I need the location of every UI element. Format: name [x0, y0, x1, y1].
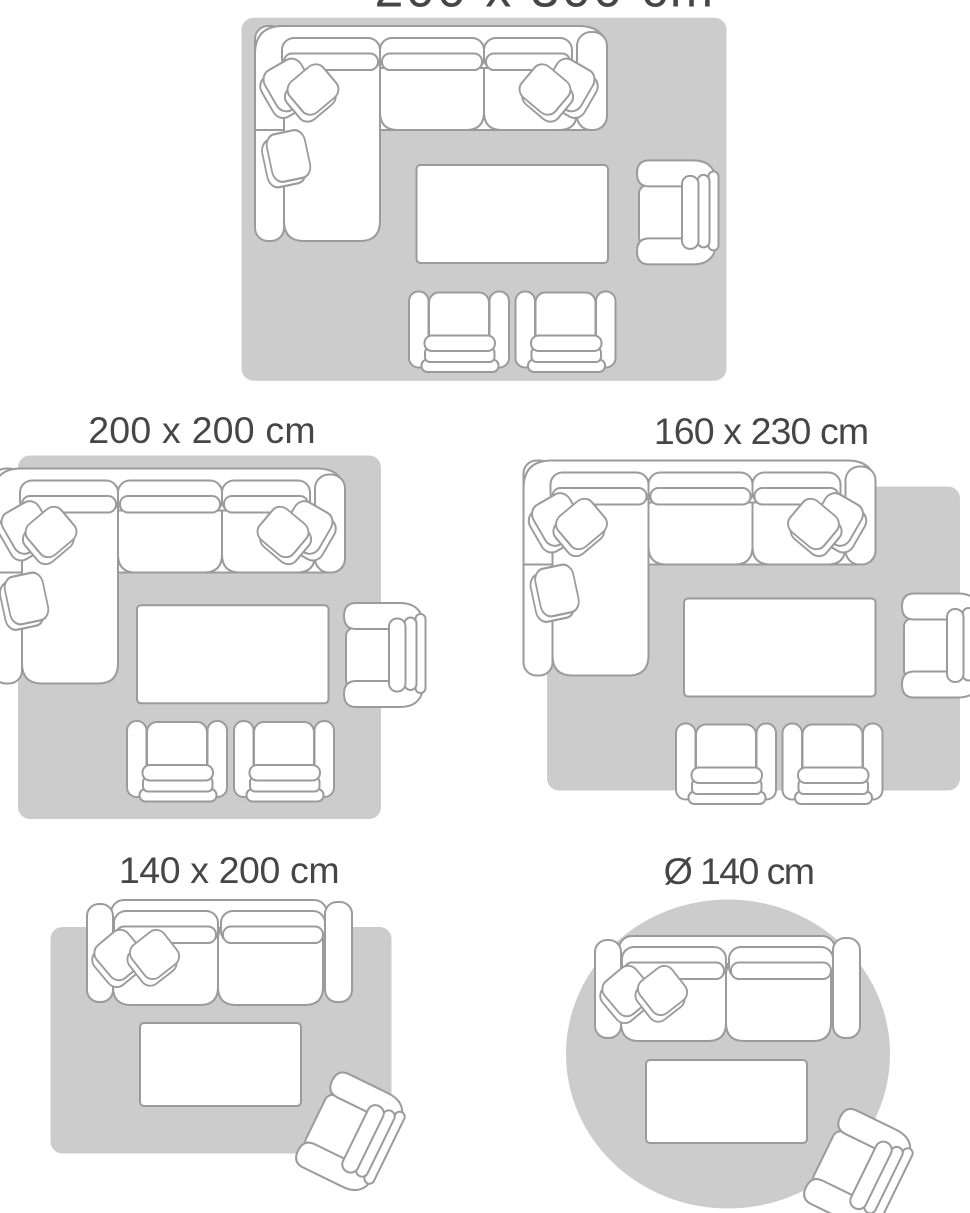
svg-text:200 x 200 cm: 200 x 200 cm — [88, 409, 316, 451]
svg-text:Ø 140 cm: Ø 140 cm — [664, 850, 814, 892]
svg-text:160 x 230 cm: 160 x 230 cm — [654, 410, 868, 452]
svg-text:200 x 300 cm: 200 x 300 cm — [375, 0, 716, 19]
svg-text:140 x 200 cm: 140 x 200 cm — [119, 849, 339, 891]
